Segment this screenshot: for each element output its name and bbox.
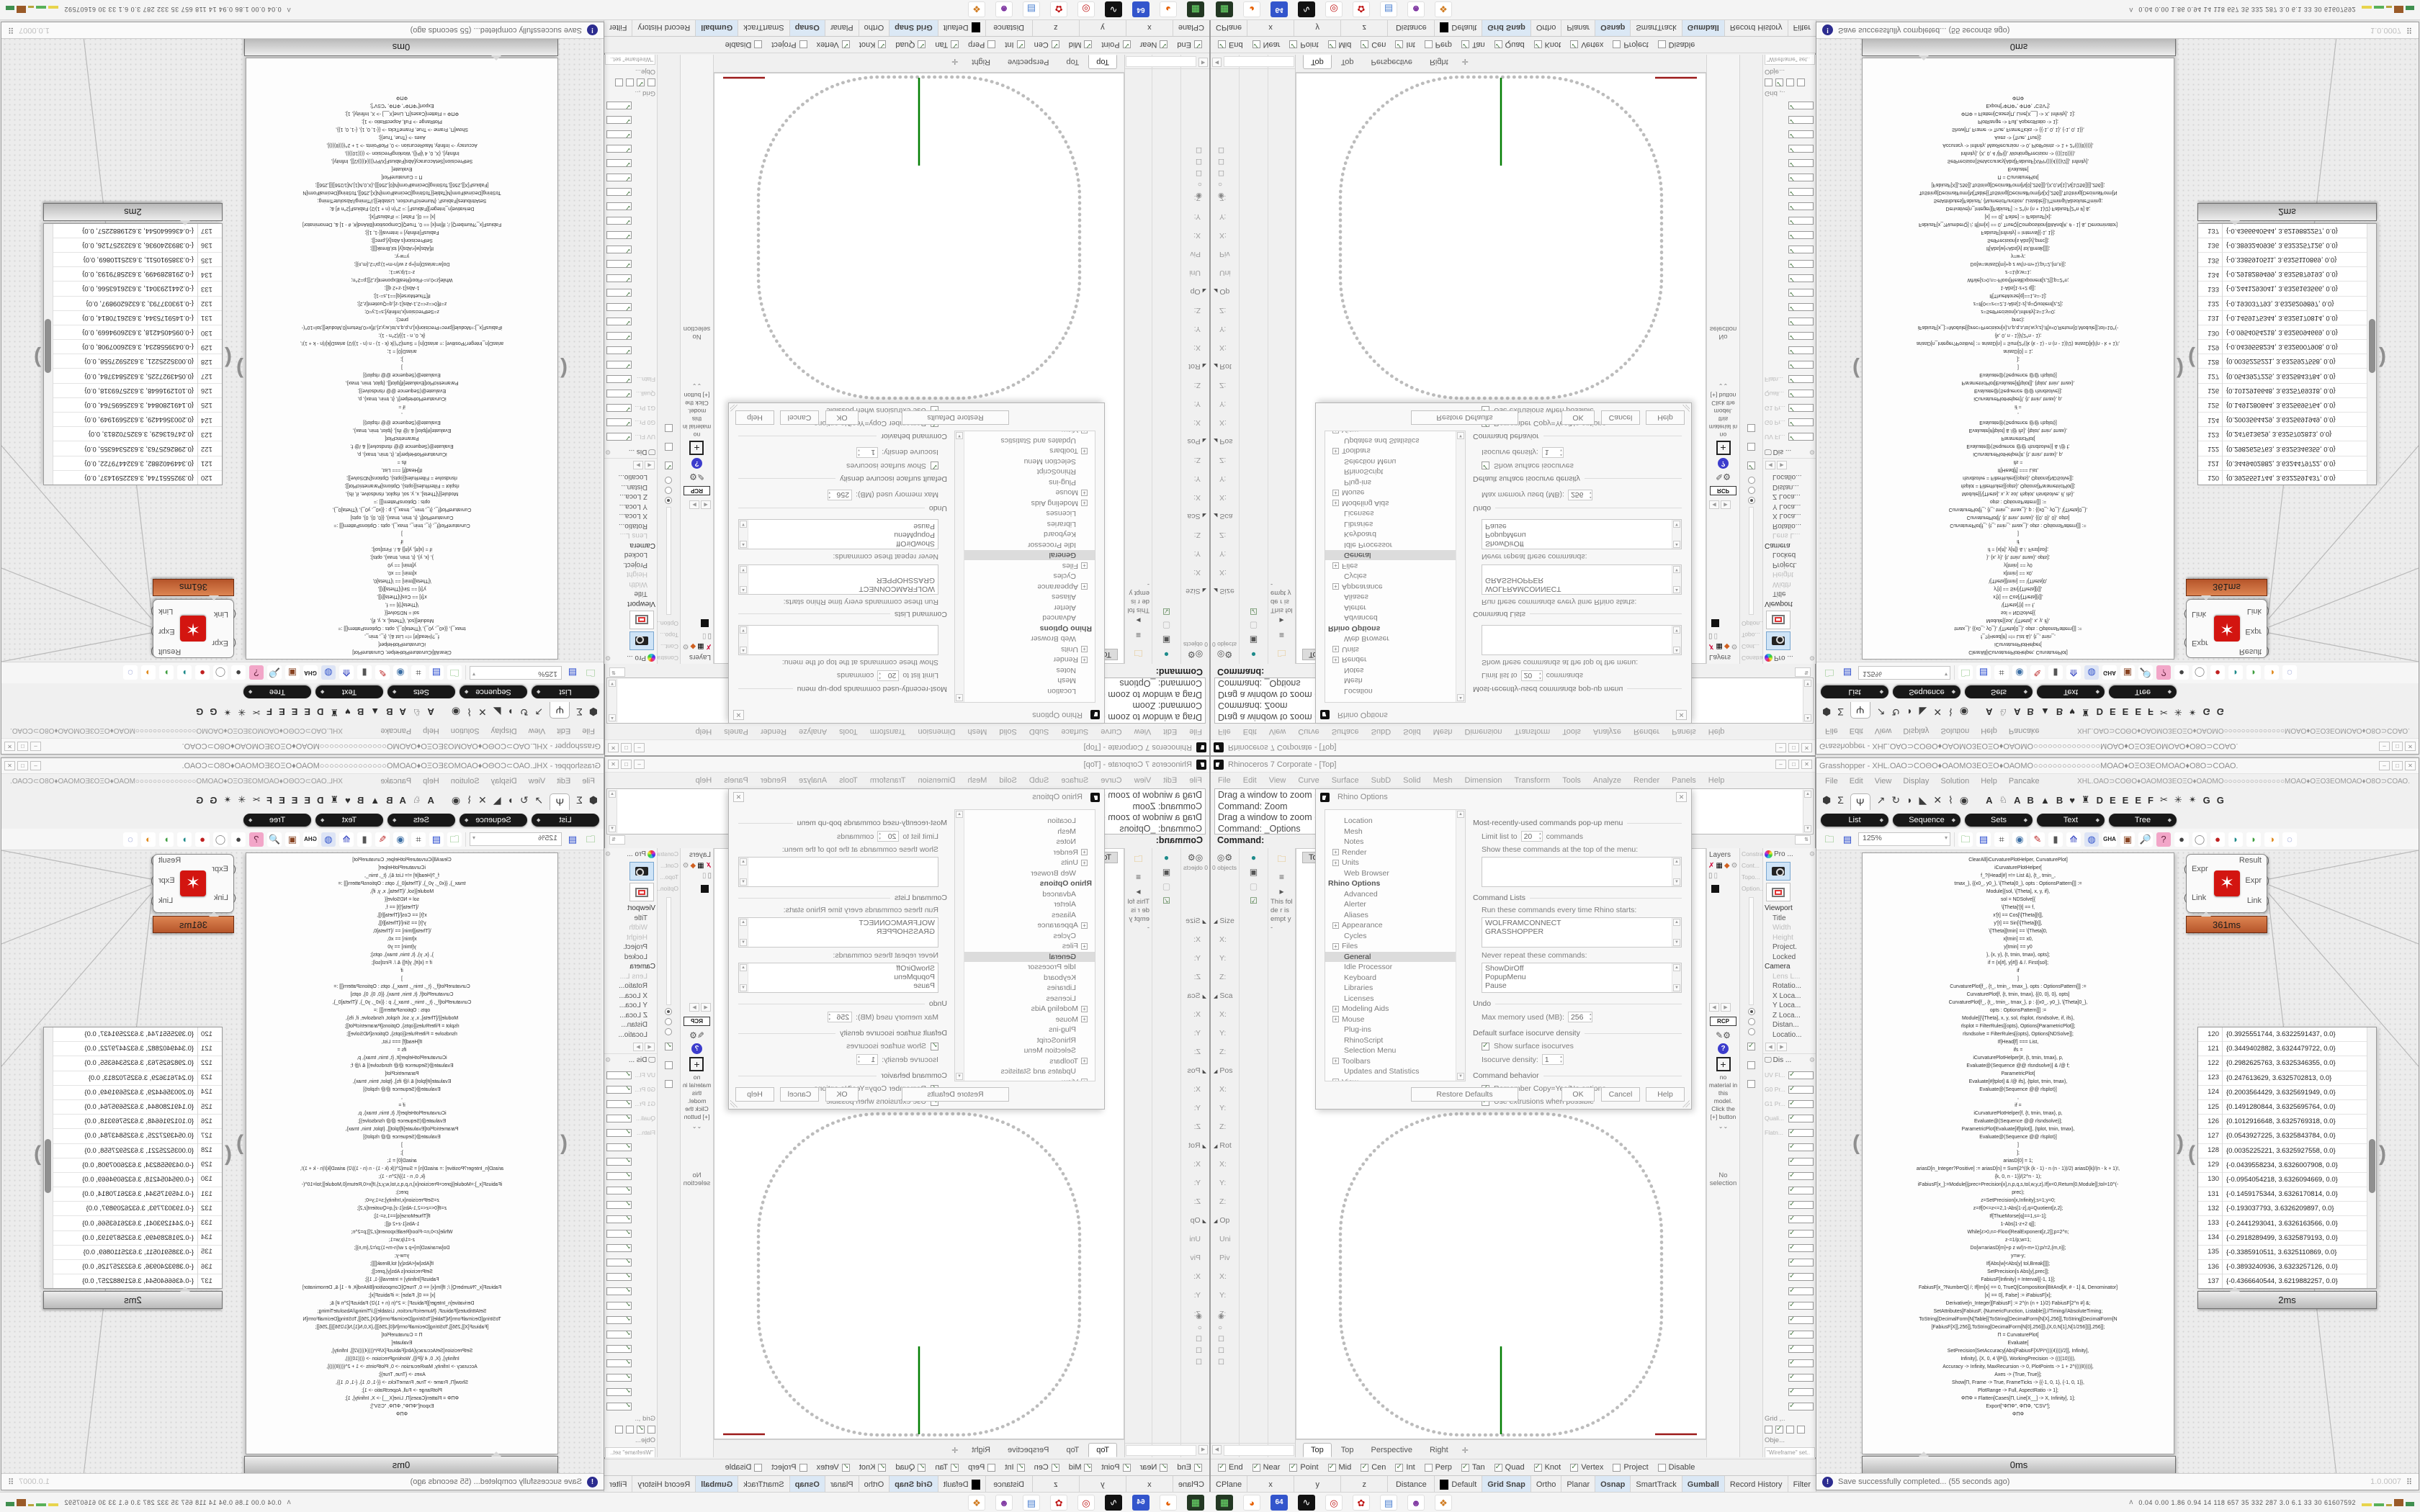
osnap-checkbox[interactable] [1160, 41, 1168, 49]
layers-pager[interactable]: ◀▶ [1707, 498, 1739, 511]
points-data-panel[interactable]: 120{0.3925551744, 3.6322591437, 0.0}121{… [43, 1027, 223, 1289]
isocurve-density-stepper[interactable]: 1 [856, 447, 878, 458]
display-checkbox[interactable] [1788, 1374, 1814, 1382]
window-button[interactable]: ✕ [608, 743, 619, 752]
preview-off-icon[interactable]: ● [2174, 832, 2189, 847]
display-setting-row[interactable] [604, 156, 657, 171]
options-tree-item[interactable]: Selection Menu [955, 1045, 1095, 1056]
never-repeat-item[interactable]: Pause [750, 522, 935, 531]
display-checkbox[interactable] [606, 1143, 632, 1151]
osnap-checkbox[interactable] [1570, 41, 1578, 49]
category-tab-glyph[interactable]: ♜ [2081, 706, 2090, 718]
red-circle-app-icon[interactable]: ◎ [1325, 1495, 1343, 1511]
add-material-button[interactable]: + [690, 441, 704, 455]
status-cell[interactable]: Default [1435, 19, 1482, 36]
property-row[interactable]: Y Loca... [604, 501, 657, 511]
display-checkbox[interactable] [606, 145, 632, 153]
boxedit-row[interactable]: Y: [1180, 954, 1209, 973]
new-document-icon[interactable]: 🗀 [583, 832, 598, 847]
options-tree-item[interactable]: Advanced [955, 889, 1095, 900]
options-tree-item[interactable]: Notes [955, 837, 1095, 847]
resize-grip[interactable] [1682, 1100, 1690, 1107]
display-setting-row[interactable]: G1 Pr... [1763, 401, 1816, 415]
display-setting-row[interactable] [604, 228, 657, 243]
osnap-checkbox[interactable] [1328, 41, 1336, 49]
options-tree-item[interactable]: Web Browser [1325, 634, 1465, 644]
property-row[interactable]: Project. [604, 559, 657, 570]
category-tab-glyph[interactable]: ♘ [1999, 794, 2008, 806]
options-tree-item[interactable]: + Units [955, 858, 1095, 868]
options-tree-item[interactable]: + Mouse [1325, 487, 1465, 498]
category-tab-icon[interactable]: ↻ [520, 794, 529, 806]
expander-icon[interactable]: + [1332, 490, 1339, 496]
display-checkbox[interactable] [606, 275, 632, 283]
category-tab-glyph[interactable]: E [2123, 795, 2129, 806]
category-tab-glyph[interactable]: B [357, 795, 364, 806]
boxedit-row[interactable]: X: [1211, 1010, 1240, 1029]
category-tab-glyph[interactable]: ✂ [252, 794, 260, 806]
wireframe-set-input[interactable]: "Wireframe" set.. [605, 1447, 655, 1457]
menu-item[interactable]: Mesh [1433, 776, 1453, 785]
menu-item[interactable]: View [1134, 728, 1152, 737]
checked-box-icon[interactable]: ☑ [1152, 606, 1180, 616]
tray-icon[interactable] [17, 6, 26, 14]
expand-arrow-icon[interactable]: ▸ [1125, 616, 1152, 626]
osnap-checkbox[interactable] [1328, 1464, 1336, 1472]
property-row[interactable]: Distan... [1763, 1021, 1816, 1031]
boxedit-row[interactable]: X: [1180, 483, 1209, 502]
gumball-teal-icon[interactable]: ◗ [177, 832, 192, 847]
boxedit-row[interactable]: Y: [1180, 202, 1209, 221]
restore-defaults-button[interactable]: Restore Defaults [1411, 410, 1518, 425]
help-button[interactable]: Help [735, 410, 774, 425]
grasshopper-canvas[interactable]: ( ) ClearAll[iCurvaturePlotHelper, Curva… [1818, 850, 2419, 1475]
options-tree-item[interactable]: + Render [1325, 847, 1465, 858]
axes-widget-icon[interactable]: ⟰ [339, 832, 354, 847]
selection-lasso-icon[interactable]: ◌ [2282, 832, 2297, 847]
boxedit-row[interactable]: Size [1211, 577, 1240, 595]
osnap-checkbox[interactable] [1658, 41, 1666, 49]
document-selector[interactable]: XHL.ΟΑΟ⊃CΟΘΟ♦ΟΑΟΜΟ3ΕΟΞΟ♦ΟΑΟΜΟ○○○○○○○○○○○… [2077, 727, 2410, 735]
menu-item[interactable]: Mesh [1433, 728, 1453, 737]
ok-button[interactable]: OK [825, 1087, 859, 1102]
display-setting-row[interactable] [604, 171, 657, 185]
menu-item[interactable]: Dimension [1465, 728, 1502, 737]
boxedit-row[interactable]: Op [1211, 1216, 1240, 1235]
max-memory-stepper[interactable]: 256 [828, 490, 853, 500]
category-tab-glyph[interactable]: B [386, 795, 393, 806]
category-tab-glyph[interactable]: A [428, 707, 434, 718]
add-material-button[interactable]: + [690, 1057, 704, 1071]
tray-icon[interactable] [48, 1503, 58, 1506]
osnap-checkbox[interactable] [1052, 41, 1059, 49]
emulator-icon[interactable]: ▦ [1216, 2, 1233, 18]
osnap-checkbox[interactable] [951, 1464, 959, 1472]
display-setting-row[interactable]: UV Fl... [604, 430, 657, 444]
osnap-toggle[interactable]: Cen [1034, 1463, 1059, 1472]
gear-icon[interactable]: ⚙ [1809, 1056, 1815, 1064]
display-checkbox[interactable] [606, 361, 632, 369]
zoom-level-combo[interactable]: 125% [470, 832, 562, 846]
grid-checkbox[interactable] [626, 78, 634, 86]
show-isocurves-checkbox[interactable] [931, 1043, 938, 1050]
display-checkbox[interactable] [606, 405, 632, 413]
display-checkbox[interactable] [606, 1071, 632, 1079]
expander-icon[interactable]: + [1332, 860, 1339, 866]
status-cell[interactable]: Osnap [1595, 1476, 1631, 1493]
options-tree-item[interactable]: + Units [1325, 644, 1465, 655]
palette-icon[interactable]: ❖ [968, 1495, 985, 1511]
expander-icon[interactable]: + [1081, 490, 1088, 496]
osnap-toggle[interactable]: Knot [859, 1463, 887, 1472]
category-tab-icon[interactable]: ◣ [1919, 706, 1927, 719]
options-tree-item[interactable]: Idle Processor [1325, 962, 1465, 973]
hamburger-icon[interactable]: ≡ [1125, 630, 1152, 640]
display-checkbox[interactable] [1788, 1172, 1814, 1180]
osnap-toggle[interactable]: Project [1613, 1463, 1648, 1472]
camera-small-icon[interactable]: ▣ [1240, 867, 1268, 877]
osnap-checkbox[interactable] [1194, 1464, 1202, 1472]
grid-checkbox[interactable] [1775, 78, 1783, 86]
display-setting-row[interactable] [1763, 300, 1816, 315]
preview-eye-icon[interactable]: ◉ [393, 832, 408, 847]
subcategory-pill[interactable]: Sets◆ [1965, 685, 2033, 698]
options-tree-item[interactable]: + Units [955, 644, 1095, 655]
display-checkbox[interactable] [606, 174, 632, 182]
emulator-icon[interactable]: ▦ [1187, 1495, 1204, 1511]
ok-button[interactable]: OK [825, 410, 859, 425]
close-icon[interactable]: ✕ [1676, 710, 1687, 720]
restore-defaults-button[interactable]: Restore Defaults [902, 410, 1009, 425]
scroll-up-icon[interactable]: ▲ [1804, 714, 1811, 721]
osnap-checkbox[interactable] [1194, 41, 1202, 49]
boxedit-row[interactable]: Uni [1211, 1235, 1240, 1254]
category-tab-glyph[interactable]: A [1986, 707, 1992, 718]
never-repeat-listbox[interactable]: ShowDirOffPopupMenuPause ▲▼ [738, 519, 938, 549]
tree-scrollbar[interactable]: ▲▼ [1456, 431, 1465, 702]
category-tab-glyph[interactable]: G [2217, 795, 2224, 806]
sphere-icon[interactable]: ● [1240, 649, 1268, 660]
preview-eye-icon[interactable]: ◉ [2012, 832, 2027, 847]
property-row[interactable]: Width [1763, 924, 1816, 934]
options-tree-item[interactable]: Aliases [1325, 910, 1465, 921]
property-row[interactable]: Z Loca... [1763, 1012, 1816, 1022]
display-checkbox[interactable] [1788, 1086, 1814, 1094]
viewport-capture-icon[interactable]: ▮ [357, 666, 372, 680]
gha-badge-icon[interactable]: GHA [303, 832, 318, 847]
display-setting-row[interactable]: Quali... [604, 1111, 657, 1125]
tray-icon[interactable] [2374, 6, 2384, 9]
startup-commands-listbox[interactable]: WOLFRAMCONNECTGRASSHOPPER ▲▼ [1482, 917, 1682, 948]
libraries-icon[interactable]: ◆ [690, 642, 696, 650]
tray-icon[interactable] [2386, 6, 2392, 9]
menu-item[interactable]: Edit [557, 726, 570, 735]
output-grip[interactable]: ) [151, 895, 153, 906]
boxedit-option-mark[interactable]: ◉ [1218, 188, 1240, 199]
display-checkbox[interactable] [1788, 1345, 1814, 1353]
boxedit-row[interactable]: Uni [1180, 1235, 1209, 1254]
osnap-checkbox[interactable] [1123, 1464, 1131, 1472]
display-setting-row[interactable] [604, 1241, 657, 1255]
output-grip[interactable]: ) [151, 875, 153, 886]
boxedit-row[interactable]: Piv [1180, 1254, 1209, 1272]
category-tab-icon[interactable]: Ψ [550, 793, 570, 810]
osnap-checkbox[interactable] [1494, 41, 1502, 49]
wolfram-code-panel[interactable]: ClearAll[iCurvaturePlotHelper, Curvature… [246, 58, 558, 660]
menu-item[interactable]: File [1218, 776, 1231, 785]
zoom-level-combo[interactable]: 125% [1858, 666, 1950, 680]
display-setting-row[interactable] [604, 1298, 657, 1313]
display-setting-row[interactable] [604, 1140, 657, 1154]
expander-icon[interactable]: + [1081, 562, 1088, 569]
grid-checkbox[interactable] [1765, 1426, 1773, 1434]
expander-icon[interactable]: + [1081, 448, 1088, 454]
options-tree-item[interactable]: + Mouse [955, 1014, 1095, 1025]
property-row[interactable]: Y Loca... [1763, 501, 1816, 511]
gha-badge-icon[interactable]: GHA [303, 666, 318, 680]
display-checkbox[interactable] [1788, 203, 1814, 211]
menu-item[interactable]: Analyze [799, 728, 827, 737]
display-checkbox[interactable] [1788, 160, 1814, 168]
boxedit-row[interactable]: X: [1180, 558, 1209, 577]
osnap-toggle[interactable]: Int [1395, 1463, 1415, 1472]
display-setting-row[interactable] [604, 127, 657, 142]
target-gear-icon[interactable]: ◎⚙ [1181, 852, 1209, 863]
display-properties-button[interactable] [629, 883, 654, 901]
display-setting-row[interactable] [1763, 1241, 1816, 1255]
options-tree-item[interactable]: + Mouse [1325, 1014, 1465, 1025]
category-tab-glyph[interactable]: G [196, 795, 203, 806]
boxedit-row[interactable]: Y: [1180, 390, 1209, 408]
options-tree-item[interactable]: + Render [1325, 654, 1465, 665]
osnap-toggle[interactable]: Point [1102, 1463, 1131, 1472]
display-setting-row[interactable]: Quali... [1763, 1111, 1816, 1125]
window-button[interactable]: □ [2392, 761, 2403, 770]
blank-swatch-icon[interactable]: ▢ [1240, 881, 1268, 891]
display-checkbox[interactable] [1788, 289, 1814, 297]
options-tree-item[interactable]: RhinoScript [955, 1035, 1095, 1046]
expander-icon[interactable]: + [1081, 657, 1088, 663]
display-setting-row[interactable] [1763, 1140, 1816, 1154]
property-row[interactable]: Viewport [1763, 904, 1816, 914]
category-tab-glyph[interactable]: ♘ [1999, 706, 2008, 718]
menu-item[interactable]: Pancake [380, 777, 411, 786]
category-tab-glyph[interactable]: F [2148, 795, 2154, 806]
menu-item[interactable]: SubD [1371, 728, 1391, 737]
options-tree-item[interactable]: + View [1325, 431, 1465, 436]
display-setting-row[interactable] [604, 113, 657, 127]
osnap-toggle[interactable]: Cen [1361, 1463, 1386, 1472]
options-tree-item[interactable]: Notes [955, 665, 1095, 676]
property-row[interactable]: Locatio... [604, 472, 657, 482]
unknown-package-icon[interactable]: ? [249, 666, 264, 680]
window-button[interactable]: □ [621, 743, 632, 752]
hamburger-icon[interactable]: ≡ [1125, 872, 1152, 882]
options-tree-item[interactable]: Rhino Options [1325, 878, 1465, 889]
category-tab-icon[interactable]: ✕ [1933, 706, 1942, 719]
options-tree-item[interactable]: Plug-ins [1325, 477, 1465, 488]
display-setting-row[interactable] [1763, 1284, 1816, 1298]
boxedit-option-mark[interactable]: ○ [1218, 1324, 1240, 1336]
top-commands-listbox[interactable]: ▲▼ [1482, 857, 1682, 887]
show-isocurves-checkbox[interactable] [931, 462, 938, 470]
category-tab-glyph[interactable]: ✴ [2189, 794, 2197, 806]
display-checkbox[interactable] [606, 117, 632, 125]
category-tab-icon[interactable]: Ψ [550, 703, 570, 719]
osnap-toggle[interactable]: Quad [895, 1463, 926, 1472]
gumball-green-icon[interactable]: ◗ [2246, 832, 2261, 847]
command-history-scrollbar[interactable]: ▲ ▼ [608, 679, 617, 722]
menu-item[interactable]: View [529, 777, 546, 786]
camera-small-icon[interactable]: ▣ [1240, 635, 1268, 645]
category-tab-glyph[interactable]: E [2110, 707, 2116, 718]
property-row[interactable]: Rotatio... [1763, 982, 1816, 992]
category-tab-glyph[interactable]: B [2027, 707, 2034, 718]
display-checkbox[interactable] [1788, 261, 1814, 269]
osnap-toggle[interactable]: Int [1395, 40, 1415, 49]
status-cell[interactable]: Ortho [1531, 19, 1562, 36]
category-tab-glyph[interactable]: ✂ [252, 706, 260, 718]
output-grip[interactable]: ) [2267, 626, 2269, 637]
options-tree-item[interactable]: Web Browser [1325, 868, 1465, 879]
preview-wire-icon[interactable]: ◯ [2192, 832, 2207, 847]
boxedit-row[interactable]: X: [1211, 1272, 1240, 1291]
boxedit-row[interactable]: Piv [1211, 240, 1240, 258]
menu-item[interactable]: Help [1708, 776, 1725, 785]
restore-defaults-button[interactable]: Restore Defaults [1411, 1087, 1518, 1102]
display-setting-row[interactable] [1763, 1327, 1816, 1341]
status-cell[interactable]: z [1032, 19, 1079, 36]
category-tab-glyph[interactable]: E [292, 795, 298, 806]
display-setting-row[interactable] [604, 1154, 657, 1169]
boxedit-option-mark[interactable]: ◉ [1218, 1313, 1240, 1324]
display-setting-row[interactable] [604, 243, 657, 257]
expander-icon[interactable]: + [1332, 448, 1339, 454]
help-button[interactable]: Help [1646, 410, 1685, 425]
hamburger-icon[interactable]: ≡ [1268, 630, 1295, 640]
resize-grip[interactable]: ⠿ [2406, 26, 2413, 35]
dialog-titlebar[interactable]: Rhino Options ✕ [729, 789, 1104, 805]
display-setting-row[interactable] [1763, 1356, 1816, 1370]
checker-swatch-icon[interactable]: ▦ [697, 642, 704, 650]
ok-button[interactable]: OK [1561, 1087, 1595, 1102]
boxedit-option-mark[interactable]: ☐ [1180, 142, 1202, 153]
grid-checkbox[interactable] [637, 1426, 645, 1434]
options-tree-item[interactable]: Idle Processor [955, 962, 1095, 973]
subcategory-pill[interactable]: Text◆ [315, 814, 383, 827]
menu-item[interactable]: Render [1633, 728, 1659, 737]
resize-grip[interactable]: ⠿ [7, 26, 14, 35]
paintbrush-gear-icon[interactable]: ✎⚙ [681, 472, 713, 482]
constraint-checkbox[interactable] [1747, 1080, 1755, 1088]
category-tab-glyph[interactable]: ✂ [2160, 794, 2168, 806]
category-tab-icon[interactable]: ⬢ [589, 706, 598, 719]
category-tab-icon[interactable]: ◣ [493, 794, 501, 806]
window-button[interactable]: – [1775, 760, 1786, 769]
firefox-icon[interactable]: ◕ [1243, 2, 1260, 18]
category-tab-glyph[interactable]: D [2097, 707, 2103, 718]
viewport-tab[interactable]: Top [1303, 1443, 1332, 1457]
property-row[interactable]: Height [604, 934, 657, 944]
floppy64-icon[interactable]: 64 [1270, 1495, 1288, 1511]
data-panel-scrollbar[interactable] [44, 224, 53, 485]
new-document-icon[interactable]: 🗀 [447, 832, 462, 847]
blank-swatch-icon[interactable]: ▢ [1240, 621, 1268, 631]
boxedit-row[interactable]: Z: [1211, 446, 1240, 464]
checked-box-icon[interactable]: ☑ [1240, 606, 1268, 616]
osnap-toggle[interactable]: End [1218, 1463, 1243, 1472]
viewport-tab[interactable]: Top [1088, 1443, 1117, 1457]
osnap-toggle[interactable]: Tan [935, 40, 959, 49]
save-icon[interactable]: ▤ [565, 666, 580, 680]
display-setting-row[interactable] [604, 358, 657, 372]
options-tree-item[interactable]: Licenses [1325, 994, 1465, 1004]
display-setting-row[interactable]: Flatn... [1763, 372, 1816, 387]
osnap-toggle[interactable]: Vertex [817, 40, 850, 49]
properties-pager[interactable]: ◀▶ [604, 459, 657, 472]
subcategory-pill[interactable]: List◆ [1821, 814, 1888, 827]
options-tree-item[interactable]: Cycles [955, 931, 1095, 942]
osnap-checkbox[interactable] [1160, 1464, 1168, 1472]
menu-item[interactable]: Surface [1332, 776, 1359, 785]
options-tree-item[interactable]: Plug-ins [1325, 1025, 1465, 1035]
menu-item[interactable]: Display [491, 777, 517, 786]
options-tree-item[interactable]: Keyboard [955, 973, 1095, 984]
subcategory-pill[interactable]: Tree◆ [243, 814, 311, 827]
menu-item[interactable]: SubD [1029, 776, 1049, 785]
status-cell[interactable]: Record History [1725, 1476, 1788, 1493]
display-checkbox[interactable] [1788, 1244, 1814, 1252]
menu-item[interactable]: Help [1981, 726, 1997, 735]
new-layer-icon[interactable]: ▯ [707, 872, 712, 881]
new-viewport-icon[interactable]: ✛ [947, 55, 962, 68]
osnap-checkbox[interactable] [842, 1464, 850, 1472]
gumball-teal-icon[interactable]: ◗ [2228, 832, 2243, 847]
constraint-checkbox[interactable] [665, 1043, 673, 1050]
display-checkbox[interactable] [1788, 1187, 1814, 1194]
menu-item[interactable]: Solid [1403, 728, 1420, 737]
property-row[interactable]: Title [1763, 588, 1816, 598]
status-cell[interactable]: Distance [985, 19, 1032, 36]
subcategory-pill[interactable]: Sets◆ [1965, 814, 2033, 827]
property-row[interactable]: Camera [1763, 540, 1816, 550]
boxedit-row[interactable]: Z: [1180, 1048, 1209, 1066]
tray-icon[interactable] [36, 1503, 46, 1506]
display-setting-row[interactable] [604, 1197, 657, 1212]
category-tab-glyph[interactable]: G [2203, 707, 2210, 718]
display-setting-row[interactable] [604, 1212, 657, 1226]
display-checkbox[interactable] [606, 189, 632, 197]
script-window-icon[interactable]: ▣ [285, 666, 300, 680]
property-row[interactable]: X Loca... [604, 510, 657, 521]
display-setting-row[interactable]: UV Fl... [1763, 430, 1816, 444]
property-row[interactable]: Distan... [604, 482, 657, 492]
status-cell[interactable]: y [1294, 1476, 1341, 1493]
category-tab-icon[interactable]: Ψ [1850, 793, 1870, 810]
property-row[interactable]: Lens L... [1763, 973, 1816, 983]
osnap-checkbox[interactable] [878, 1464, 886, 1472]
options-tree-item[interactable]: General [1325, 952, 1465, 963]
swirl-badge-icon[interactable]: ◍ [2084, 666, 2099, 680]
sketch-pen-icon[interactable]: ✎ [375, 666, 390, 680]
boxedit-row[interactable]: X: [1211, 333, 1240, 352]
display-setting-row[interactable] [604, 142, 657, 156]
constraint-radio[interactable] [1748, 497, 1755, 504]
osnap-checkbox[interactable] [1461, 1464, 1469, 1472]
options-tree-item[interactable]: Plug-ins [955, 1025, 1095, 1035]
osnap-checkbox[interactable] [1085, 1464, 1093, 1472]
never-repeat-item[interactable]: ShowDirOff [750, 539, 935, 548]
